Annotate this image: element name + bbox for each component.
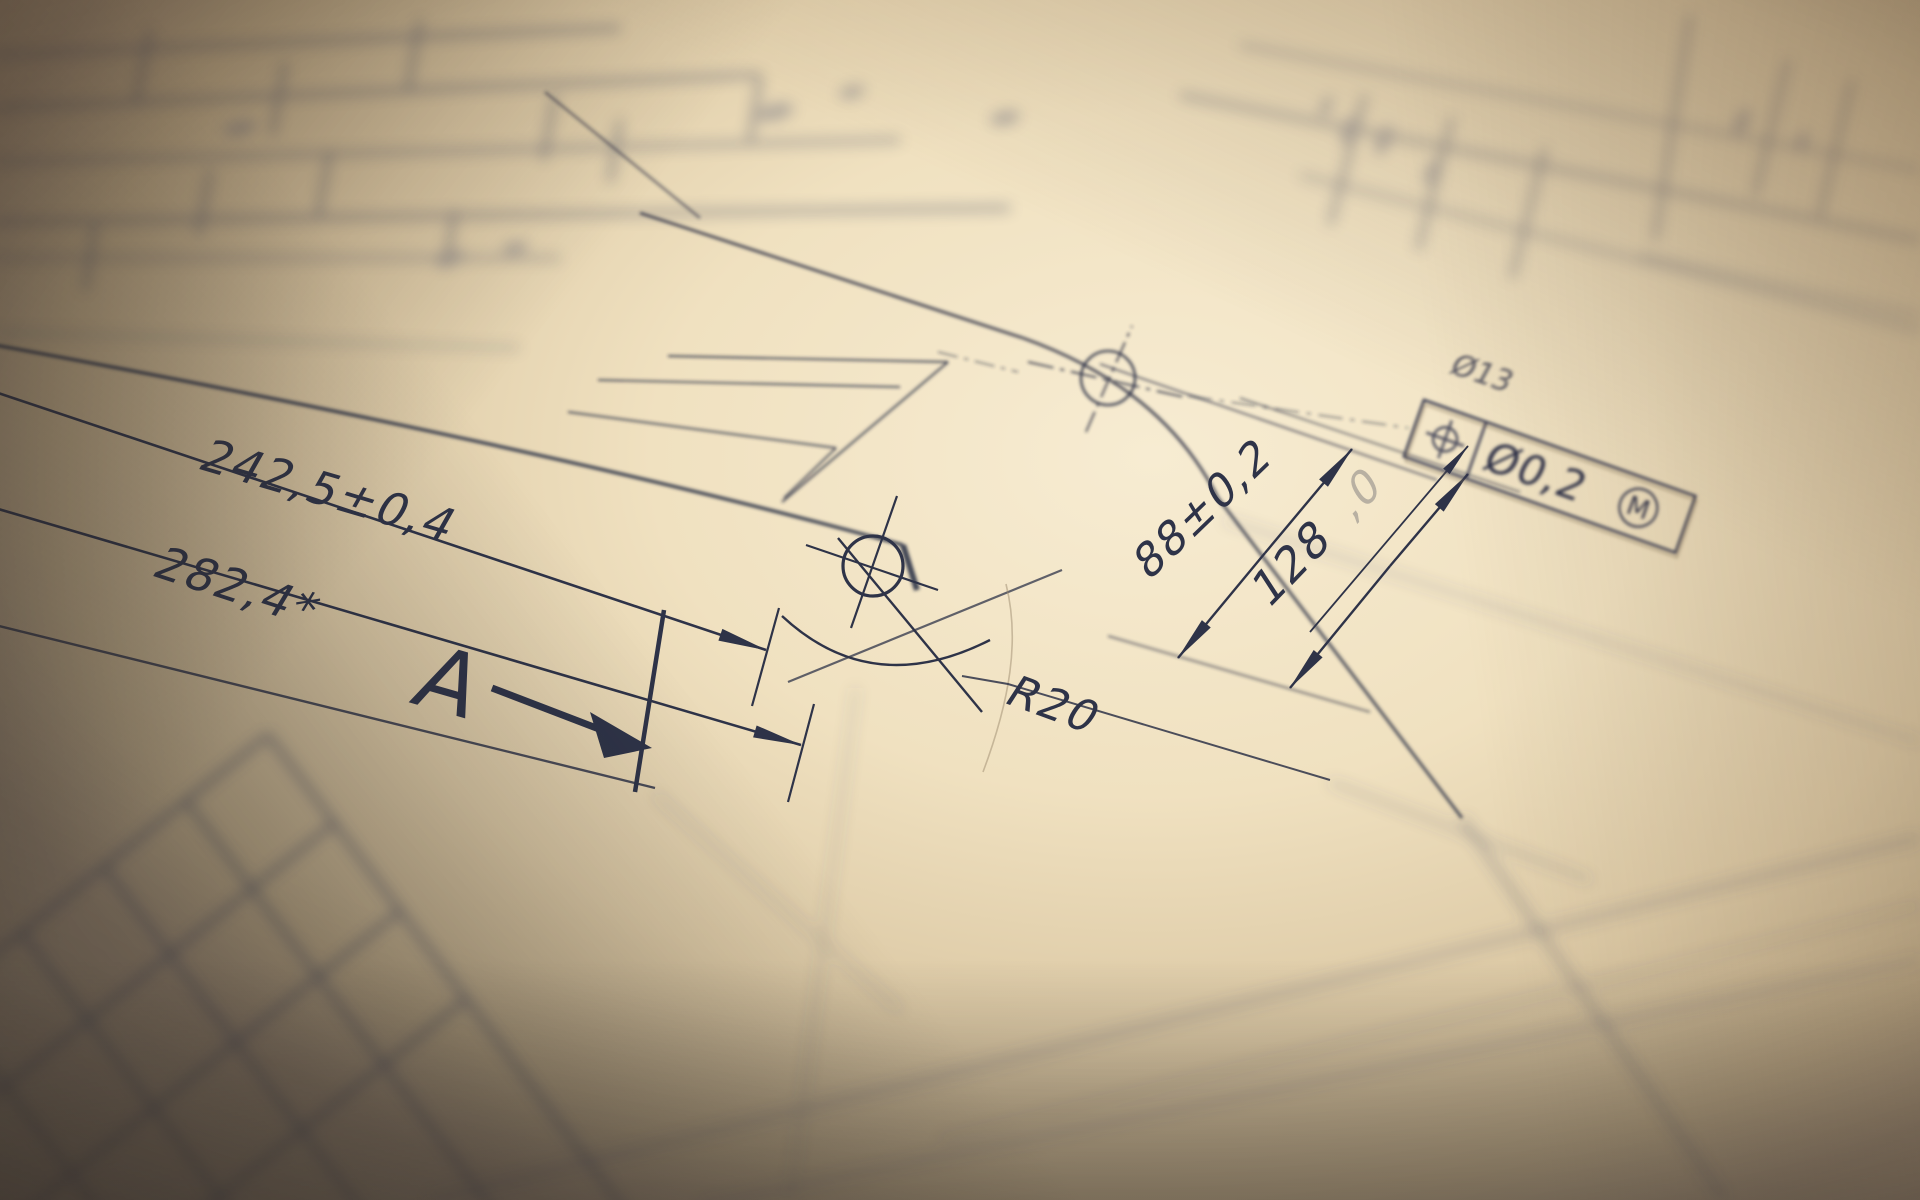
dimension-labels: 242,5±0,4 282,4* 88±0,2 128 ,0 R20 A (144, 425, 1390, 743)
position-symbol-icon (1420, 414, 1471, 465)
view-label-a: A (399, 627, 501, 739)
blurred-dimension-table-top-left (0, 20, 1021, 348)
dimension-label-width-tol: 242,5±0,4 (191, 430, 468, 552)
hole-center-mark-lower (782, 496, 1062, 772)
hole-diameter-note: Ø13 (1444, 348, 1520, 399)
radius-label: R20 (996, 667, 1112, 743)
faint-background-lines (430, 520, 1920, 1200)
section-line (635, 610, 664, 792)
blurred-text-marks (222, 83, 1021, 268)
drawing-linework: Ø0,2 M Ø13 242,5±0,4 282,4* 88±0,2 128 ,… (0, 0, 1920, 1200)
blueprint-photo: Ø0,2 M Ø13 242,5±0,4 282,4* 88±0,2 128 ,… (0, 0, 1920, 1200)
dimension-label-width-overall: 282,4* (144, 538, 331, 636)
blurred-title-block-grid (0, 735, 628, 1200)
dimension-line-282 (0, 508, 801, 745)
section-view-arrow (492, 610, 664, 792)
fcf-leader (1310, 446, 1468, 632)
dimension-label-height: 128 (1244, 506, 1339, 619)
fcf-modifier-m: M (1622, 491, 1653, 527)
pencil-curve (983, 584, 1012, 772)
fillet-arc-r20 (782, 616, 990, 665)
hole-center-mark-upper (938, 326, 1408, 432)
dimension-line-128 (1390, 474, 1468, 566)
blurred-dimension-table-top-right (1180, 15, 1920, 330)
horizontal-dimensions (0, 392, 814, 802)
